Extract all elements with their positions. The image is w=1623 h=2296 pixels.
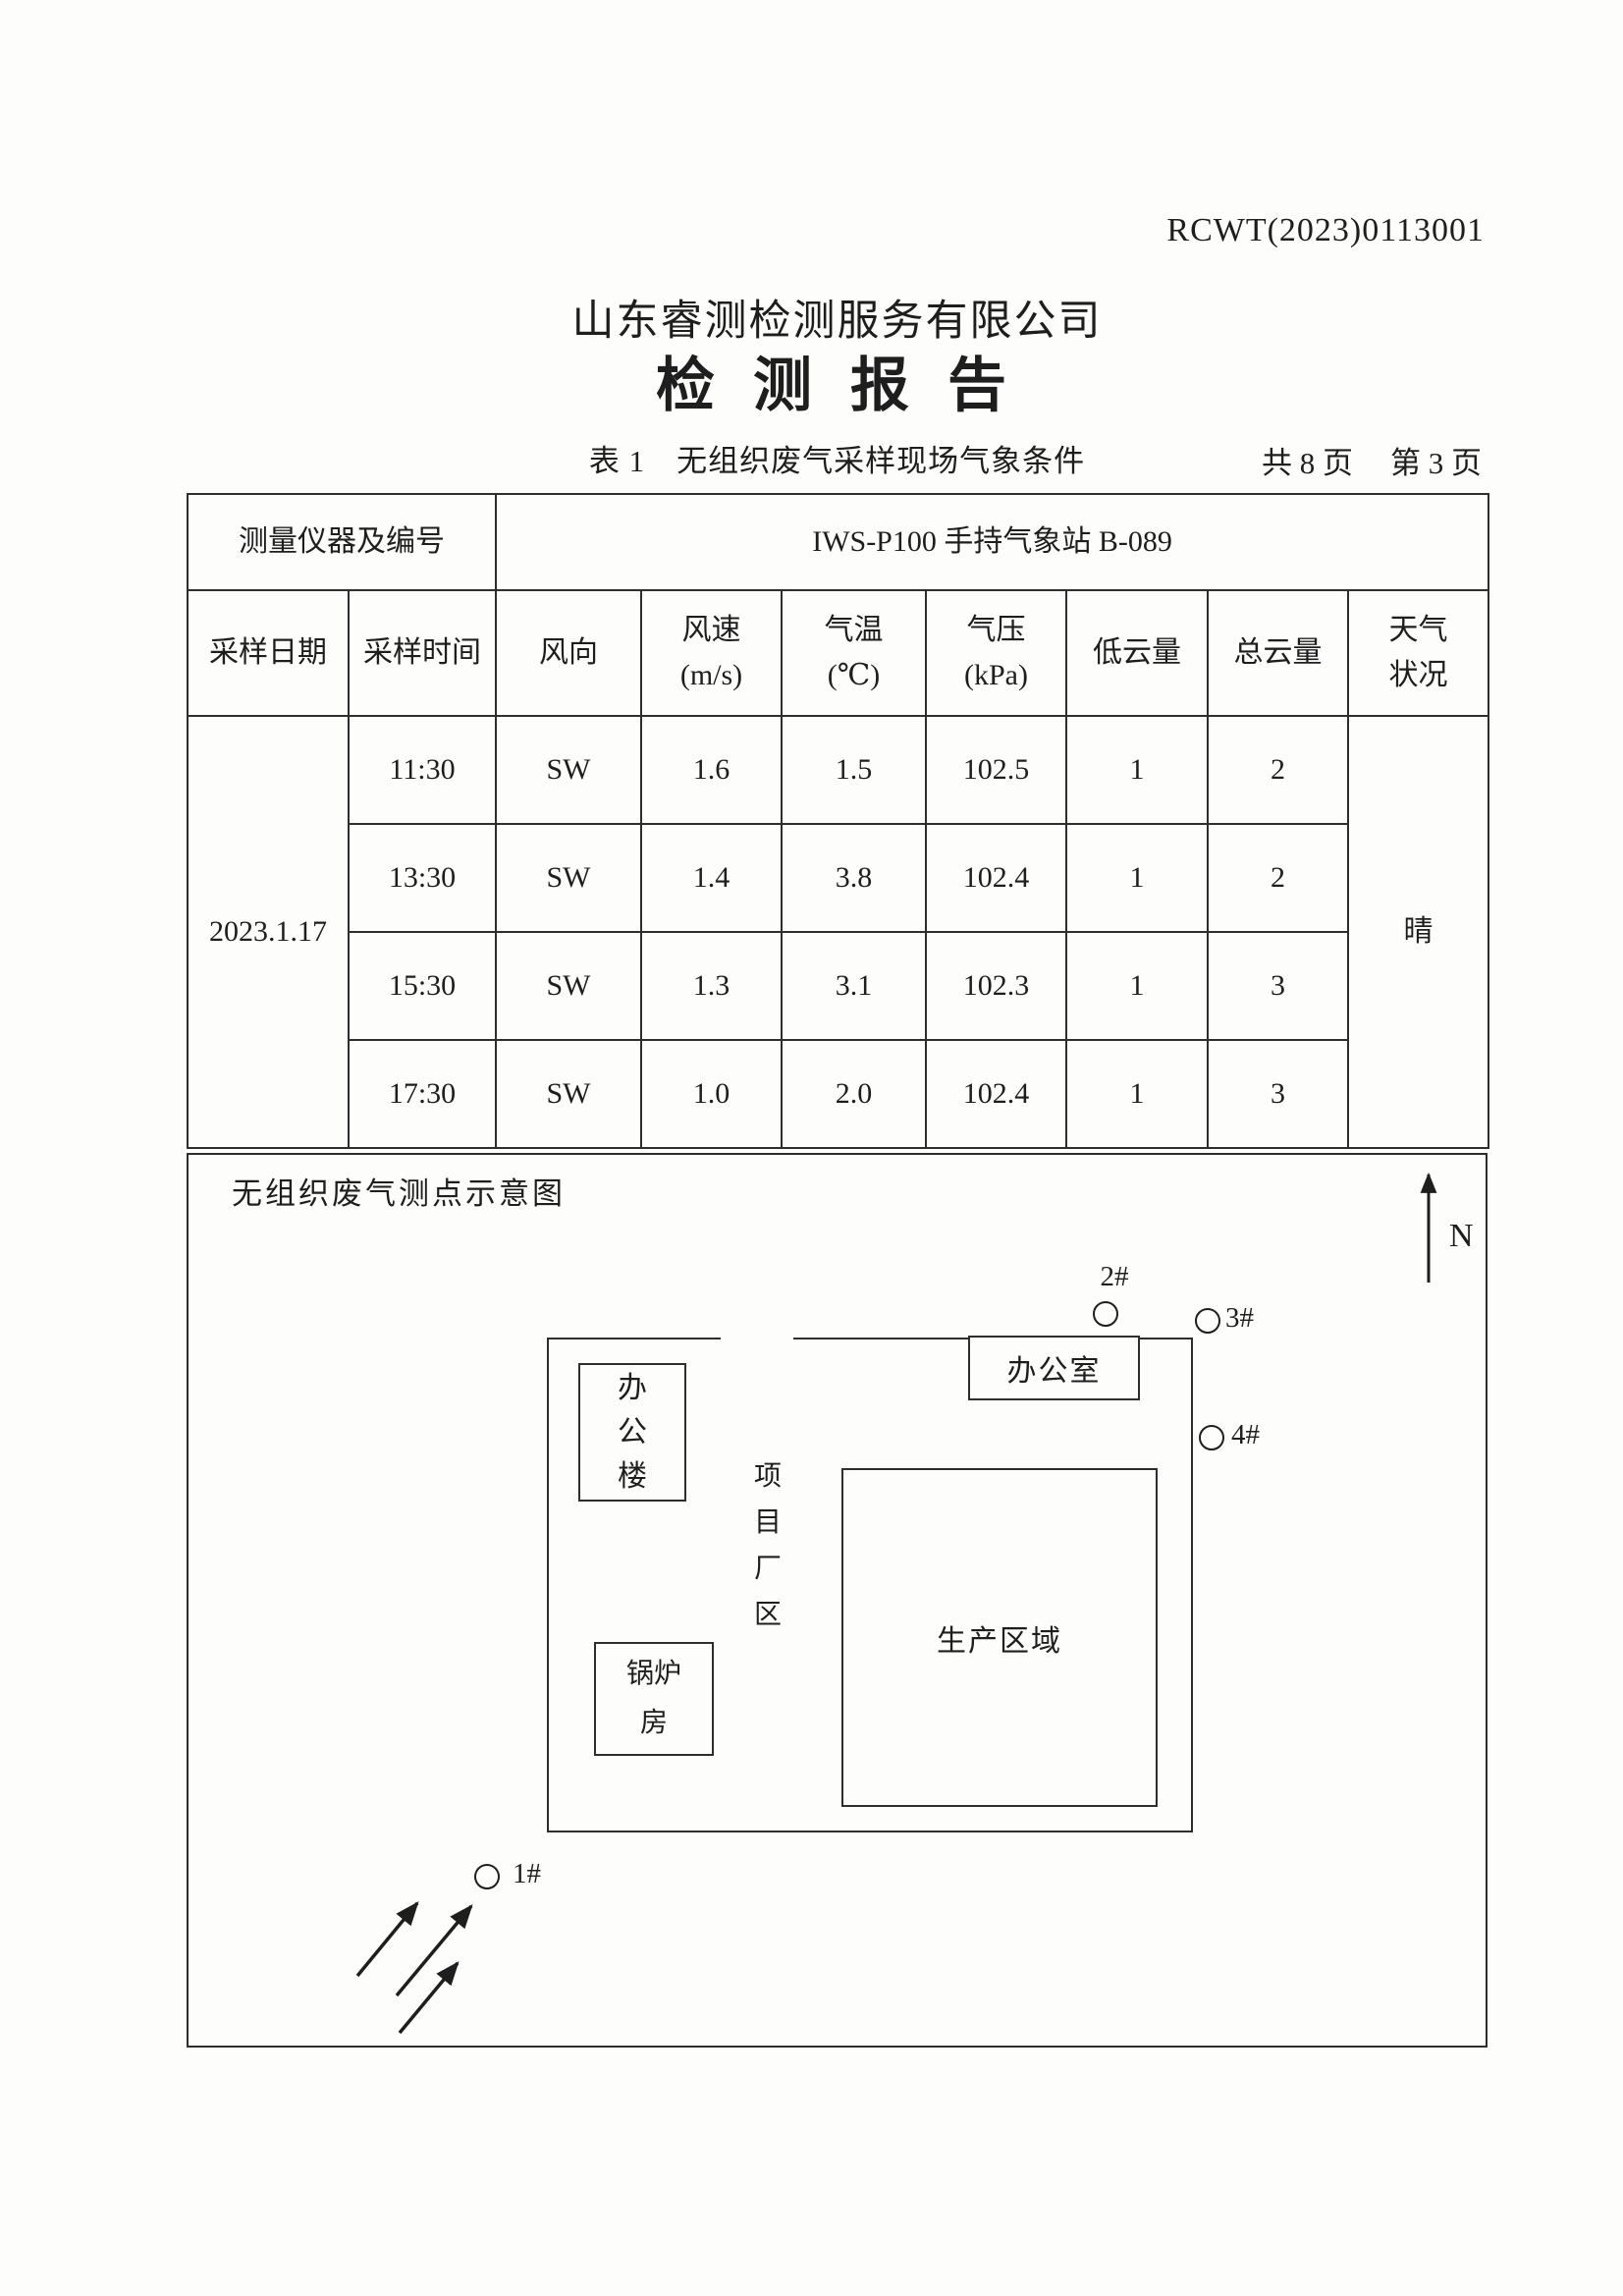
page-total: 共 8 页 (1262, 438, 1353, 482)
monitoring-point-2-icon (1093, 1301, 1118, 1327)
pressure-cell: 102.5 (926, 716, 1066, 824)
total-cloud-cell: 2 (1208, 824, 1348, 932)
site-diagram-panel: 无组织废气测点示意图 N 办公室 (187, 1153, 1488, 2048)
pressure-cell: 102.4 (926, 824, 1066, 932)
instrument-label-cell: 测量仪器及编号 (188, 494, 496, 590)
time-cell: 15:30 (349, 932, 496, 1040)
wind-dir-cell: SW (496, 824, 641, 932)
total-cloud-cell: 2 (1208, 716, 1348, 824)
factory-boundary-left (547, 1338, 549, 1832)
monitoring-point-1-icon (474, 1864, 500, 1889)
factory-boundary-right (1191, 1338, 1193, 1832)
wind-direction-arrows-icon (357, 1903, 471, 2033)
temp-cell: 3.8 (782, 824, 926, 932)
weather-conditions-table: 测量仪器及编号 IWS-P100 手持气象站 B-089 采样日期 采样时间 风… (187, 493, 1489, 1149)
col-header-pressure: 气压 (kPa) (926, 590, 1066, 716)
pressure-cell: 102.4 (926, 1040, 1066, 1148)
temp-cell: 2.0 (782, 1040, 926, 1148)
time-cell: 11:30 (349, 716, 496, 824)
col-header-time: 采样时间 (349, 590, 496, 716)
office-building-label: 办公楼 (617, 1366, 648, 1499)
north-label: N (1449, 1218, 1474, 1255)
monitoring-point-3-icon (1195, 1308, 1220, 1334)
report-page: RCWT(2023)0113001 山东睿测检测服务有限公司 检 测 报 告 表… (0, 0, 1623, 2296)
factory-boundary-top-left (547, 1338, 721, 1339)
time-cell: 13:30 (349, 824, 496, 932)
monitoring-point-4-icon (1199, 1425, 1224, 1450)
office-room-box: 办公室 (968, 1336, 1140, 1400)
production-area-box: 生产区域 (841, 1468, 1158, 1807)
col-header-weather: 天气 状况 (1348, 590, 1488, 716)
sampling-date-cell: 2023.1.17 (188, 716, 349, 1148)
low-cloud-cell: 1 (1066, 716, 1208, 824)
weather-cell: 晴 (1348, 716, 1488, 1148)
col-header-date: 采样日期 (188, 590, 349, 716)
time-cell: 17:30 (349, 1040, 496, 1148)
boiler-room-box: 锅炉房 (594, 1642, 714, 1756)
page-title: 检 测 报 告 (187, 338, 1488, 423)
temp-cell: 3.1 (782, 932, 926, 1040)
table-caption-row: 表 1 无组织废气采样现场气象条件 共 8 页 第 3 页 (187, 436, 1488, 479)
monitoring-point-3-label: 3# (1225, 1302, 1254, 1335)
col-header-wind-dir: 风向 (496, 590, 641, 716)
monitoring-point-2-label: 2# (1089, 1261, 1140, 1293)
low-cloud-cell: 1 (1066, 824, 1208, 932)
pressure-cell: 102.3 (926, 932, 1066, 1040)
wind-dir-cell: SW (496, 716, 641, 824)
factory-boundary-bottom (547, 1831, 1193, 1832)
wind-speed-cell: 1.0 (641, 1040, 782, 1148)
temp-cell: 1.5 (782, 716, 926, 824)
boiler-room-label: 锅炉房 (622, 1650, 685, 1748)
table-row: 15:30 SW 1.3 3.1 102.3 1 3 (188, 932, 1488, 1040)
table-row: 2023.1.17 11:30 SW 1.6 1.5 102.5 1 2 晴 (188, 716, 1488, 824)
wind-dir-cell: SW (496, 932, 641, 1040)
col-header-total-cloud: 总云量 (1208, 590, 1348, 716)
office-room-label: 办公室 (1007, 1346, 1102, 1390)
col-header-wind-speed: 风速 (m/s) (641, 590, 782, 716)
total-cloud-cell: 3 (1208, 1040, 1348, 1148)
production-area-label: 生产区域 (937, 1616, 1062, 1660)
low-cloud-cell: 1 (1066, 932, 1208, 1040)
wind-speed-cell: 1.4 (641, 824, 782, 932)
office-building-box: 办公楼 (578, 1363, 686, 1502)
instrument-row: 测量仪器及编号 IWS-P100 手持气象站 B-089 (188, 494, 1488, 590)
page-current: 第 3 页 (1390, 438, 1482, 482)
col-header-low-cloud: 低云量 (1066, 590, 1208, 716)
project-area-label: 项目厂区 (752, 1453, 784, 1638)
wind-dir-cell: SW (496, 1040, 641, 1148)
low-cloud-cell: 1 (1066, 1040, 1208, 1148)
monitoring-point-1-label: 1# (513, 1858, 541, 1890)
table-row: 13:30 SW 1.4 3.8 102.4 1 2 (188, 824, 1488, 932)
page-info: 共 8 页 第 3 页 (1262, 438, 1482, 482)
col-header-temp: 气温 (℃) (782, 590, 926, 716)
header-row: 采样日期 采样时间 风向 风速 (m/s) 气温 (℃) 气压 (kPa) 低云… (188, 590, 1488, 716)
diagram-arrows-layer (189, 1155, 1486, 2042)
table-row: 17:30 SW 1.0 2.0 102.4 1 3 (188, 1040, 1488, 1148)
monitoring-point-4-label: 4# (1231, 1419, 1260, 1451)
wind-speed-cell: 1.3 (641, 932, 782, 1040)
instrument-value-cell: IWS-P100 手持气象站 B-089 (496, 494, 1488, 590)
report-number: RCWT(2023)0113001 (1166, 212, 1485, 249)
total-cloud-cell: 3 (1208, 932, 1348, 1040)
wind-speed-cell: 1.6 (641, 716, 782, 824)
